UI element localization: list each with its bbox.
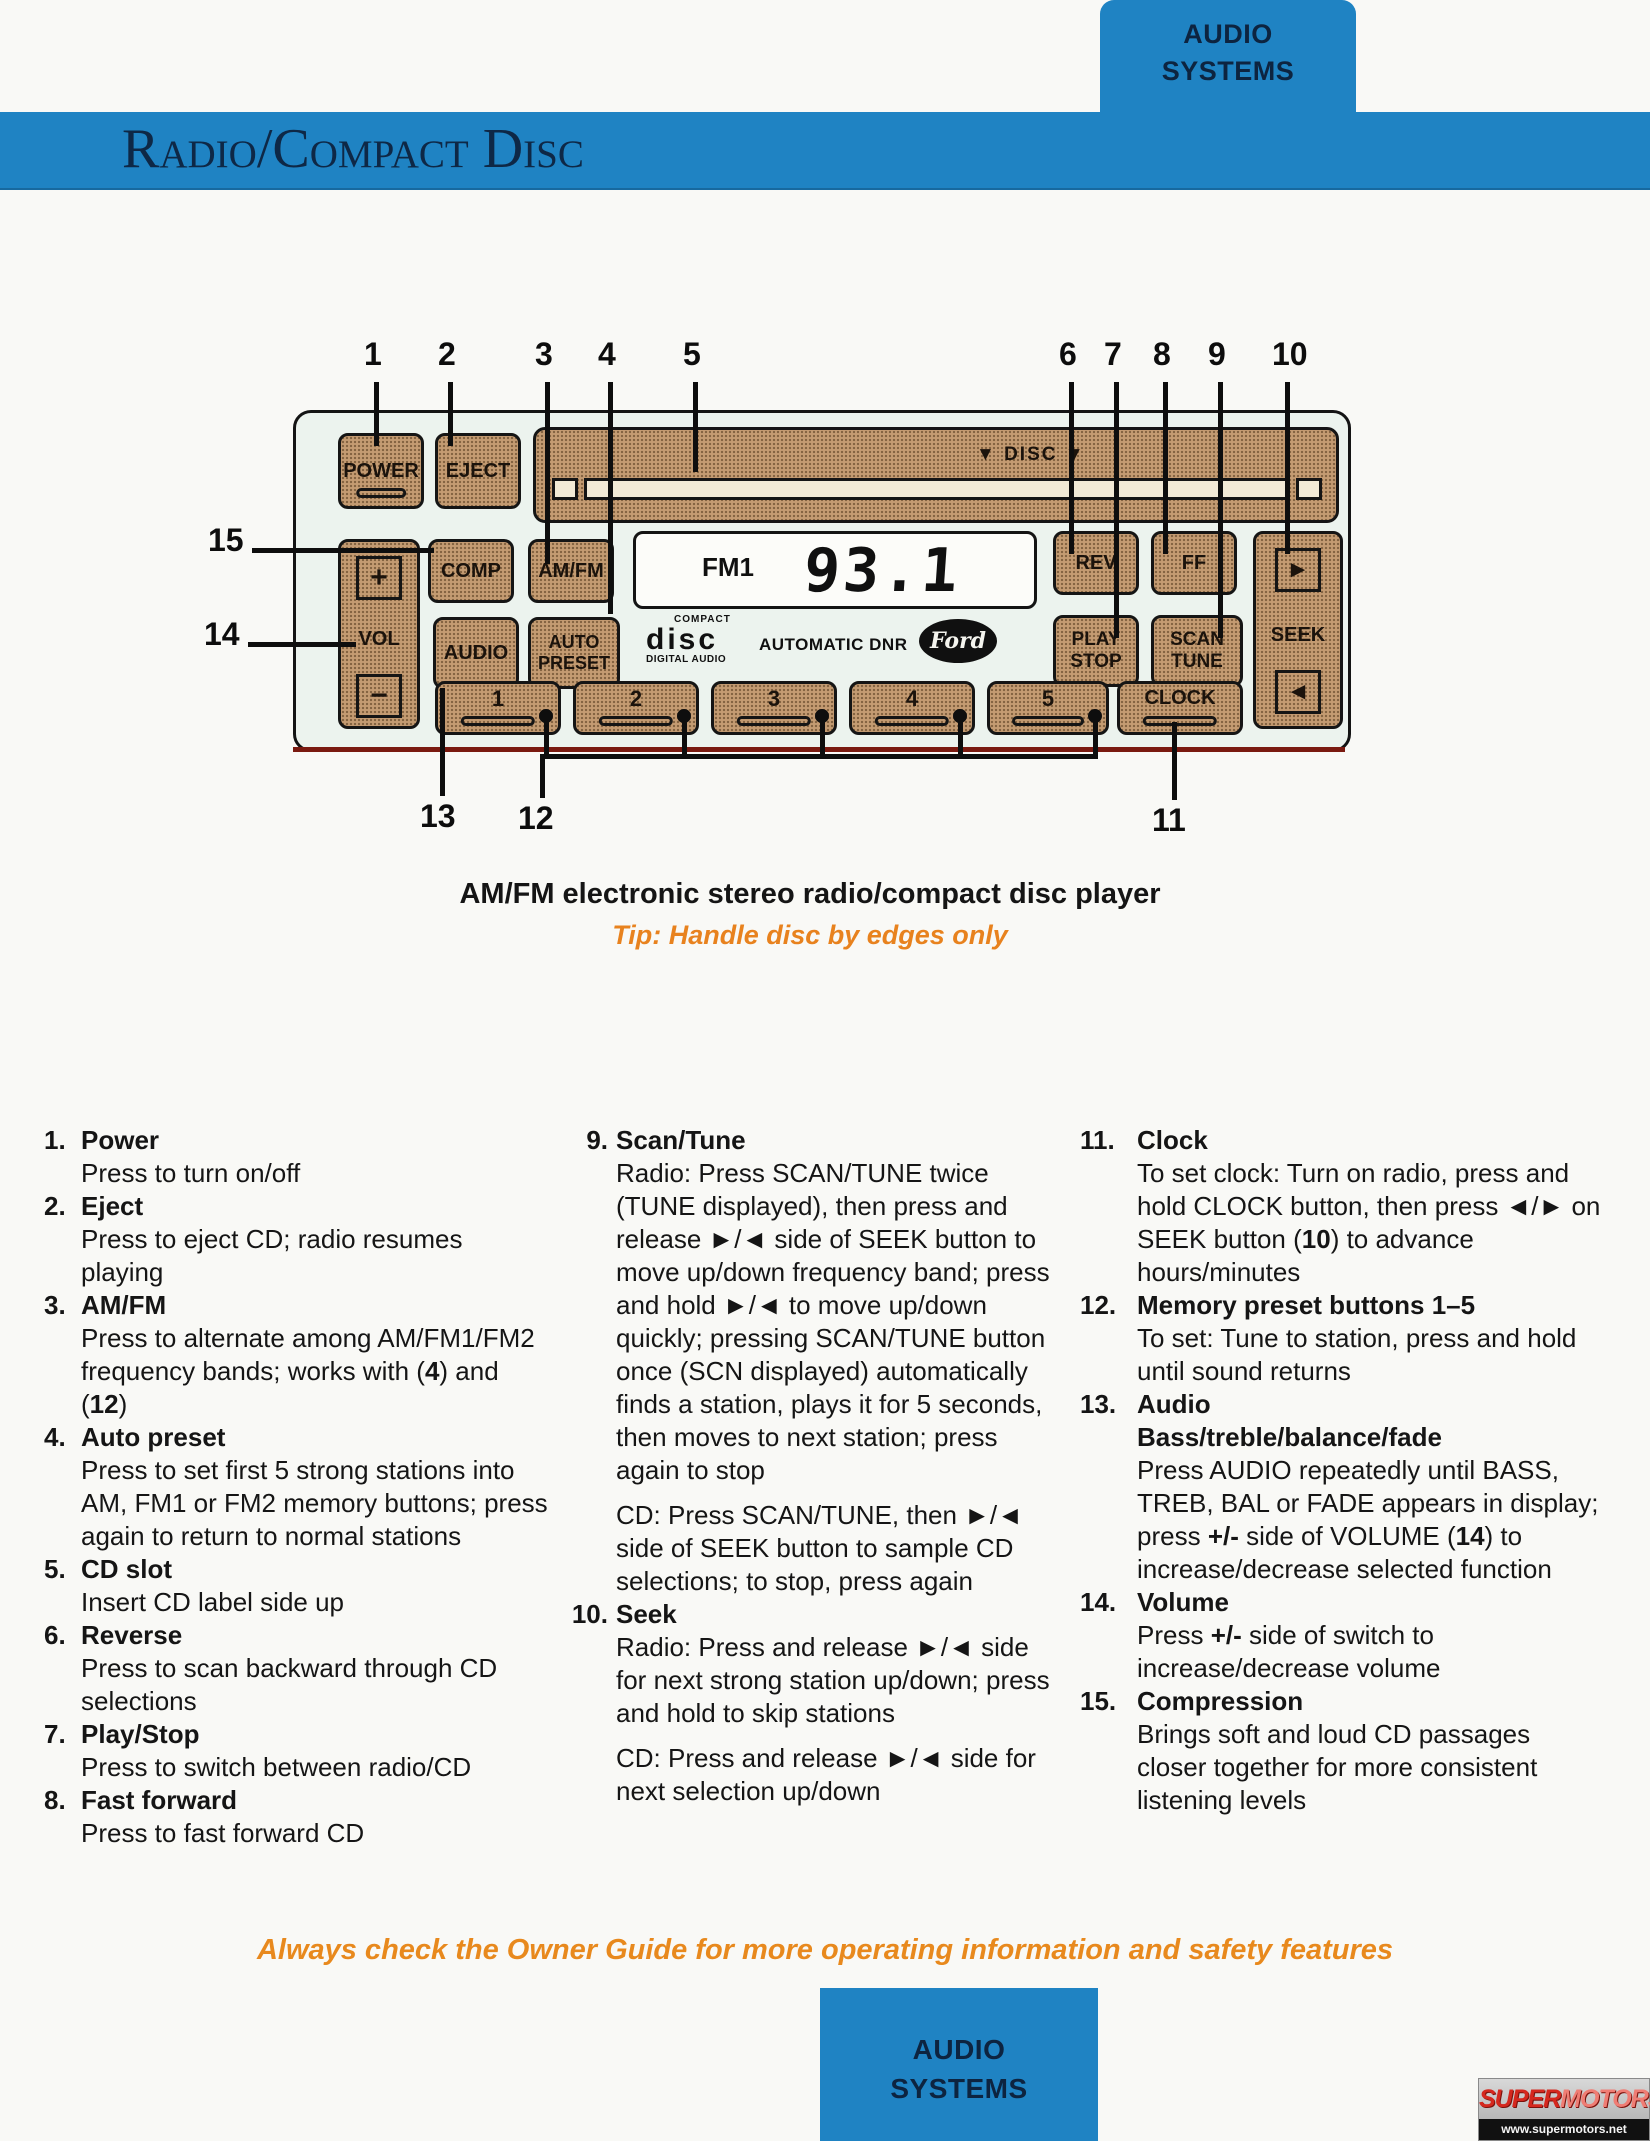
legend-item-body: CD slotInsert CD label side up: [81, 1553, 549, 1619]
callout-4: 4: [598, 336, 616, 373]
legend-item-title: Audio Bass/treble/balance/fade: [1137, 1388, 1605, 1454]
preset-2-pill: [599, 716, 673, 726]
audio-button: AUDIO: [433, 617, 519, 689]
legend-item-title: Compression: [1137, 1685, 1605, 1718]
eject-label: EJECT: [446, 460, 510, 483]
legend-item: 11.ClockTo set clock: Turn on radio, pre…: [1080, 1124, 1605, 1289]
legend-item-body: VolumePress +/- side of switch to increa…: [1137, 1586, 1605, 1685]
preset-3-label: 3: [714, 686, 834, 712]
legend-item: 5.CD slotInsert CD label side up: [44, 1553, 549, 1619]
auto-preset-button: AUTO PRESET: [528, 617, 620, 689]
legend-item-paragraph: Press AUDIO repeatedly until BASS, TREB,…: [1137, 1454, 1605, 1586]
legend-item-paragraph: To set: Tune to station, press and hold …: [1137, 1322, 1605, 1388]
callout-line-8: [1163, 382, 1168, 554]
callout-line-5: [693, 382, 698, 472]
legend-item-title: Eject: [81, 1190, 549, 1223]
rev-label: REV: [1075, 552, 1116, 575]
seek-up-button: ►: [1275, 548, 1321, 592]
legend-item-body: Play/StopPress to switch between radio/C…: [81, 1718, 549, 1784]
scan-tune-label: SCAN TUNE: [1170, 629, 1224, 673]
legend-item-title: Fast forward: [81, 1784, 549, 1817]
legend-item-number: 1.: [44, 1124, 81, 1190]
clock-button: CLOCK: [1117, 681, 1243, 735]
seek-rocker: ► SEEK ◄: [1253, 531, 1343, 729]
preset-3-stub: [820, 716, 825, 758]
legend-item: 4.Auto presetPress to set first 5 strong…: [44, 1421, 549, 1553]
legend-item-body: EjectPress to eject CD; radio resumes pl…: [81, 1190, 549, 1289]
volume-rocker: + VOL −: [338, 539, 420, 729]
legend-item: 12.Memory preset buttons 1–5To set: Tune…: [1080, 1289, 1605, 1388]
rev-button: REV: [1053, 531, 1139, 595]
preset-2-button: 2: [573, 681, 699, 735]
minus-glyph: −: [370, 679, 388, 713]
scan-tune-button: SCAN TUNE: [1151, 615, 1243, 687]
legend-item-number: 5.: [44, 1553, 81, 1619]
legend-item-paragraph: Press +/- side of switch to increase/dec…: [1137, 1619, 1605, 1685]
preset-5-label: 5: [990, 686, 1106, 712]
clock-pill: [1143, 716, 1217, 726]
legend-column-2: 9.Scan/TuneRadio: Press SCAN/TUNE twice …: [560, 1124, 1062, 1808]
legend-item-body: Memory preset buttons 1–5To set: Tune to…: [1137, 1289, 1605, 1388]
automatic-dnr-label: AUTOMATIC DNR: [759, 635, 907, 655]
callout-line-12: [540, 754, 545, 798]
preset-1-pill: [461, 716, 535, 726]
legend-item: 1.PowerPress to turn on/off: [44, 1124, 549, 1190]
preset-4-label: 4: [852, 686, 972, 712]
radio-faceplate: POWER EJECT ▼ DISC ▼ + VOL − COMP AM/FM …: [293, 410, 1351, 752]
cd-logo-digital-audio: DIGITAL AUDIO: [646, 655, 731, 665]
legend-item-paragraph: Radio: Press and release ►/◄ side for ne…: [616, 1631, 1062, 1730]
legend-item: 8.Fast forwardPress to fast forward CD: [44, 1784, 549, 1850]
preset-1-button: 1: [435, 681, 561, 735]
legend-item-body: SeekRadio: Press and release ►/◄ side fo…: [616, 1598, 1062, 1808]
callout-line-6: [1069, 382, 1074, 554]
slot-end-right: [1296, 478, 1322, 500]
legend-item-paragraph: Press to alternate among AM/FM1/FM2 freq…: [81, 1322, 549, 1421]
frequency-readout: 93.1: [802, 536, 963, 606]
callout-11: 11: [1152, 802, 1186, 839]
ford-logo-text: Ford: [930, 628, 986, 654]
supermotors-watermark: SUPERMOTORS www.supermotors.net: [1478, 2078, 1650, 2141]
audio-label: AUDIO: [444, 642, 508, 665]
comp-button: COMP: [428, 539, 514, 603]
legend-item-body: AM/FMPress to alternate among AM/FM1/FM2…: [81, 1289, 549, 1421]
manual-page: AUDIO SYSTEMS Radio/Compact Disc POWER E…: [0, 0, 1650, 2141]
power-label: POWER: [343, 460, 419, 483]
bottom-tab-line-1: AUDIO: [820, 2030, 1098, 2069]
legend-item: 7.Play/StopPress to switch between radio…: [44, 1718, 549, 1784]
callout-line-14: [248, 642, 356, 647]
preset-3-pill: [737, 716, 811, 726]
legend-item-title: Seek: [616, 1598, 1062, 1631]
watermark-motors: MOTORS: [1560, 2085, 1650, 2113]
plus-glyph: +: [370, 561, 388, 595]
watermark-logo: SUPERMOTORS: [1479, 2079, 1649, 2119]
radio-underline-red: [293, 747, 1345, 752]
compact-disc-logo: COMPACT disc DIGITAL AUDIO: [646, 615, 731, 665]
callout-line-1: [374, 382, 379, 446]
cd-slot: [584, 478, 1290, 500]
legend-item-number: 7.: [44, 1718, 81, 1784]
seek-down-button: ◄: [1275, 670, 1321, 714]
legend-item-body: Fast forwardPress to fast forward CD: [81, 1784, 549, 1850]
callout-line-13: [440, 688, 445, 796]
legend-item-paragraph: To set clock: Turn on radio, press and h…: [1137, 1157, 1605, 1289]
callout-15: 15: [208, 522, 244, 559]
legend-item-body: Scan/TuneRadio: Press SCAN/TUNE twice (T…: [616, 1124, 1062, 1598]
legend-item-paragraph: Press to eject CD; radio resumes playing: [81, 1223, 549, 1289]
legend-item: 10.SeekRadio: Press and release ►/◄ side…: [560, 1598, 1062, 1808]
slot-end-left: [552, 478, 578, 500]
legend-item-body: Audio Bass/treble/balance/fadePress AUDI…: [1137, 1388, 1605, 1586]
legend-item-paragraph: Radio: Press SCAN/TUNE twice (TUNE displ…: [616, 1157, 1062, 1487]
radio-display: FM1 93.1: [633, 531, 1037, 609]
preset-4-stub: [958, 716, 963, 758]
legend-item-body: ClockTo set clock: Turn on radio, press …: [1137, 1124, 1605, 1289]
preset-4-pill: [875, 716, 949, 726]
page-title: Radio/Compact Disc: [0, 112, 1650, 186]
seek-down-arrow-icon: ◄: [1286, 678, 1310, 706]
bottom-tab-line-2: SYSTEMS: [820, 2069, 1098, 2108]
preset-3-button: 3: [711, 681, 837, 735]
legend-item-body: CompressionBrings soft and loud CD passa…: [1137, 1685, 1605, 1817]
legend-item-number: 3.: [44, 1289, 81, 1421]
callout-12: 12: [518, 800, 554, 837]
preset-2-label: 2: [576, 686, 696, 712]
tab-line-2: SYSTEMS: [1100, 53, 1356, 90]
legend-item-title: Auto preset: [81, 1421, 549, 1454]
legend-item-title: Scan/Tune: [616, 1124, 1062, 1157]
ff-label: FF: [1182, 552, 1206, 575]
legend-item-paragraph: Press to fast forward CD: [81, 1817, 549, 1850]
legend-item: 14.VolumePress +/- side of switch to inc…: [1080, 1586, 1605, 1685]
legend-item-title: Power: [81, 1124, 549, 1157]
legend-column-3: 11.ClockTo set clock: Turn on radio, pre…: [1080, 1124, 1605, 1817]
legend-item: 9.Scan/TuneRadio: Press SCAN/TUNE twice …: [560, 1124, 1062, 1598]
legend-item-title: AM/FM: [81, 1289, 549, 1322]
title-band: Radio/Compact Disc: [0, 112, 1650, 190]
legend-item-paragraph: Brings soft and loud CD passages closer …: [1137, 1718, 1605, 1817]
legend-item: 2.EjectPress to eject CD; radio resumes …: [44, 1190, 549, 1289]
callout-line-9: [1218, 382, 1223, 638]
legend-item-paragraph: Insert CD label side up: [81, 1586, 549, 1619]
legend-item-paragraph: Press to set first 5 strong stations int…: [81, 1454, 549, 1553]
legend-item-title: Play/Stop: [81, 1718, 549, 1751]
preset-5-button: 5: [987, 681, 1109, 735]
callout-6: 6: [1059, 336, 1077, 373]
legend-item: 6.ReversePress to scan backward through …: [44, 1619, 549, 1718]
comp-label: COMP: [441, 560, 501, 583]
legend-column-1: 1.PowerPress to turn on/off2.EjectPress …: [44, 1124, 549, 1850]
cd-logo-disc: disc: [646, 625, 731, 655]
power-pill: [356, 488, 406, 498]
callout-9: 9: [1208, 336, 1226, 373]
legend-item-title: CD slot: [81, 1553, 549, 1586]
volume-minus-button: −: [356, 674, 402, 718]
band-indicator: FM1: [702, 552, 754, 583]
amfm-button: AM/FM: [528, 539, 614, 603]
legend-item-body: PowerPress to turn on/off: [81, 1124, 549, 1190]
watermark-url-bar: www.supermotors.net: [1479, 2119, 1649, 2140]
legend-item-paragraph: Press to turn on/off: [81, 1157, 549, 1190]
seek-up-arrow-icon: ►: [1286, 556, 1310, 584]
diagram-caption: AM/FM electronic stereo radio/compact di…: [0, 878, 1620, 911]
preset-1-label: 1: [438, 686, 558, 712]
legend-item-number: 4.: [44, 1421, 81, 1553]
volume-plus-button: +: [356, 556, 402, 600]
preset-2-stub: [682, 716, 687, 758]
legend-item: 3.AM/FMPress to alternate among AM/FM1/F…: [44, 1289, 549, 1421]
callout-line-11: [1172, 722, 1177, 800]
legend-item-number: 2.: [44, 1190, 81, 1289]
callout-line-3: [545, 382, 550, 564]
legend-item-paragraph: Press to scan backward through CD select…: [81, 1652, 549, 1718]
legend-item-body: Auto presetPress to set first 5 strong s…: [81, 1421, 549, 1553]
power-button: POWER: [338, 433, 424, 509]
legend-item-title: Reverse: [81, 1619, 549, 1652]
callout-14: 14: [204, 616, 240, 653]
callout-line-10: [1285, 382, 1290, 554]
seek-label: SEEK: [1256, 624, 1340, 647]
play-stop-button: PLAY STOP: [1053, 615, 1139, 687]
callout-10: 10: [1272, 336, 1308, 373]
watermark-super: SUPER: [1479, 2085, 1560, 2113]
preset-bus-line: [540, 754, 1098, 759]
callout-line-2: [448, 382, 453, 446]
clock-label: CLOCK: [1120, 687, 1240, 710]
callout-13: 13: [420, 798, 456, 835]
legend-item-number: 6.: [44, 1619, 81, 1718]
legend-item-number: 13.: [1080, 1388, 1126, 1586]
callout-7: 7: [1104, 336, 1122, 373]
callout-2: 2: [438, 336, 456, 373]
tab-line-1: AUDIO: [1100, 16, 1356, 53]
legend-item-number: 14.: [1080, 1586, 1126, 1685]
legend-item-paragraph: CD: Press SCAN/TUNE, then ►/◄ side of SE…: [616, 1499, 1062, 1598]
auto-preset-label: AUTO PRESET: [538, 632, 610, 674]
legend-item-title: Memory preset buttons 1–5: [1137, 1289, 1605, 1322]
legend-item-paragraph: Press to switch between radio/CD: [81, 1751, 549, 1784]
preset-5-pill: [1012, 716, 1084, 726]
callout-1: 1: [364, 336, 382, 373]
legend-item-number: 10.: [560, 1598, 608, 1808]
legend-item-number: 11.: [1080, 1124, 1126, 1289]
preset-4-button: 4: [849, 681, 975, 735]
vol-label: VOL: [341, 628, 417, 651]
callout-line-7: [1114, 382, 1119, 638]
audio-systems-bottom-tab: AUDIO SYSTEMS: [820, 1988, 1098, 2141]
audio-systems-top-tab: AUDIO SYSTEMS: [1100, 0, 1356, 114]
legend-item: 13.Audio Bass/treble/balance/fadePress A…: [1080, 1388, 1605, 1586]
legend-item-number: 12.: [1080, 1289, 1126, 1388]
preset-5-stub: [1093, 716, 1098, 758]
legend-item-number: 15.: [1080, 1685, 1126, 1817]
legend-item-title: Volume: [1137, 1586, 1605, 1619]
ford-logo: Ford: [919, 619, 997, 663]
legend-item-body: ReversePress to scan backward through CD…: [81, 1619, 549, 1718]
owner-guide-note: Always check the Owner Guide for more op…: [0, 1934, 1650, 1967]
callout-line-15: [252, 548, 434, 553]
legend-item-number: 9.: [560, 1124, 608, 1598]
callout-5: 5: [683, 336, 701, 373]
legend-item-title: Clock: [1137, 1124, 1605, 1157]
callout-3: 3: [535, 336, 553, 373]
callout-line-4: [608, 382, 613, 614]
preset-1-stub: [544, 716, 549, 758]
watermark-url: www.supermotors.net: [1501, 2122, 1627, 2136]
handling-tip: Tip: Handle disc by edges only: [0, 920, 1620, 951]
legend-item-number: 8.: [44, 1784, 81, 1850]
legend-item: 15.CompressionBrings soft and loud CD pa…: [1080, 1685, 1605, 1817]
legend-item-paragraph: CD: Press and release ►/◄ side for next …: [616, 1742, 1062, 1808]
callout-8: 8: [1153, 336, 1171, 373]
